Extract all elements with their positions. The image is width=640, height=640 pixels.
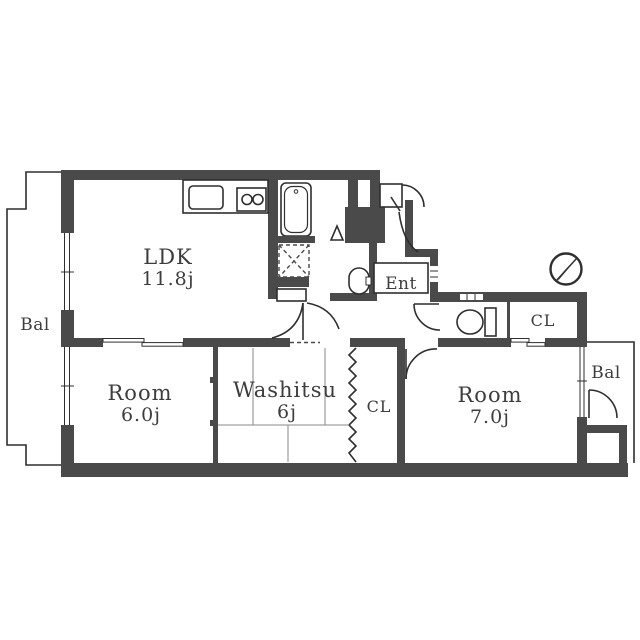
label-room7: Room bbox=[457, 383, 522, 407]
door-balcony-right bbox=[589, 390, 617, 418]
bathtub-icon bbox=[281, 183, 311, 236]
door-corridor-ldk bbox=[272, 303, 339, 340]
meter-box bbox=[587, 433, 619, 463]
window-entry-side bbox=[430, 266, 438, 282]
label-room7-size: 7.0j bbox=[470, 406, 510, 428]
label-bal-left: Bal bbox=[20, 315, 50, 335]
accordion-door-cl bbox=[349, 348, 356, 462]
label-cl-top: CL bbox=[531, 311, 556, 330]
hall-cabinet bbox=[277, 289, 306, 301]
fusuma-washitsu bbox=[290, 338, 320, 347]
front-door bbox=[380, 184, 424, 252]
bath-folding-door bbox=[331, 226, 343, 240]
room-washitsu-divider bbox=[210, 347, 218, 463]
bath-bottom-wall bbox=[272, 236, 315, 243]
door-toilet bbox=[414, 304, 440, 330]
sink-icon bbox=[189, 186, 223, 209]
toilet-icon bbox=[457, 308, 496, 336]
label-ldk: LDK bbox=[143, 245, 192, 269]
floor-plan-canvas: LDK 11.8j Room 6.0j Washitsu 6j Room 7.0… bbox=[0, 0, 640, 640]
label-ldk-size: 11.8j bbox=[141, 268, 194, 290]
label-room6-size: 6.0j bbox=[121, 404, 161, 426]
window-room6-balcony bbox=[61, 347, 74, 425]
label-ent: Ent bbox=[385, 274, 417, 294]
sliding-door-ldk-room6 bbox=[103, 338, 183, 347]
label-cl-bottom: CL bbox=[367, 397, 392, 416]
window-room7-balcony bbox=[577, 347, 587, 417]
sliding-door-cl-room7 bbox=[511, 338, 545, 347]
window-toilet-top bbox=[460, 294, 483, 300]
kitchen-counter bbox=[183, 180, 268, 213]
window-ldk-balcony bbox=[61, 233, 74, 310]
label-room6: Room bbox=[107, 381, 172, 405]
door-room7 bbox=[406, 349, 437, 379]
washing-machine-icon bbox=[279, 245, 309, 277]
label-washitsu: Washitsu bbox=[233, 378, 337, 402]
label-washitsu-size: 6j bbox=[277, 401, 297, 423]
washbasin-icon bbox=[349, 268, 371, 294]
label-bal-right: Bal bbox=[591, 363, 621, 383]
floor-plan: LDK 11.8j Room 6.0j Washitsu 6j Room 7.0… bbox=[0, 0, 640, 640]
compass-icon bbox=[551, 254, 582, 285]
